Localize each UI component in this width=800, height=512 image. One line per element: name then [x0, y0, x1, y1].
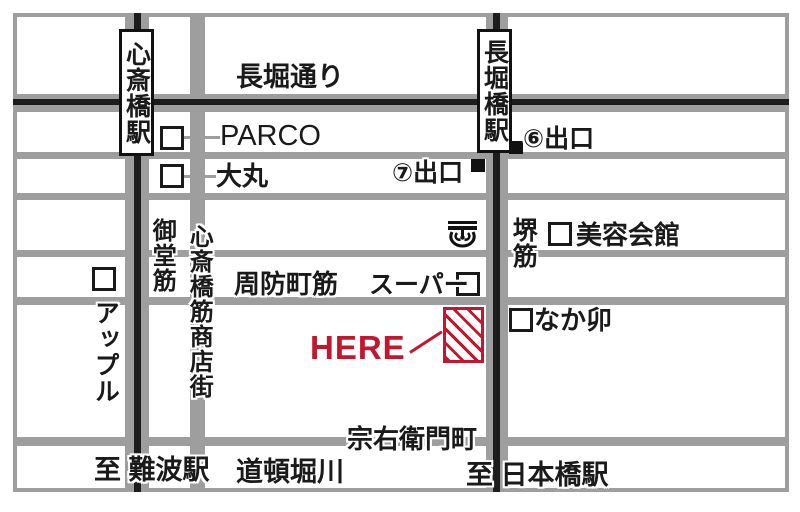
station-sign-nagahoribashi-label: 長堀橋駅 [477, 39, 513, 143]
exit7-label: ⑦出口 [392, 160, 463, 186]
station-sign-shinsaibashi: 心斎橋駅 [119, 29, 154, 156]
parco-connector [184, 136, 220, 139]
daimaru-marker [160, 164, 184, 188]
sakai-suji-label: 堺筋 [510, 217, 536, 269]
apple-marker [92, 267, 116, 291]
daimaru-label: 大丸 [216, 163, 268, 190]
here-box [443, 307, 484, 363]
shotengai-label: 心斎橋筋商店街 [186, 224, 211, 399]
station-sign-shinsaibashi-label: 心斎橋駅 [119, 41, 155, 145]
parco-label: PARCO [220, 121, 321, 151]
biyo-kaikan-label: 美容会館 [576, 222, 680, 249]
station-sign-nagahoribashi: 長堀橋駅 [477, 29, 512, 153]
to-namba-label: 至 難波駅 [94, 456, 210, 484]
here-pointer [409, 331, 443, 354]
dotonbori-label: 道頓堀川 [236, 458, 344, 486]
to-nipponbashi-label: 至 日本橋駅 [466, 461, 609, 489]
nakau-marker [509, 308, 533, 332]
daimaru-connector [184, 175, 216, 178]
nagahori-dori-label: 長堀通り [236, 63, 344, 91]
here-label: HERE [310, 331, 406, 366]
map-border-right [785, 13, 789, 492]
exit6-label: ⑥出口 [523, 126, 594, 152]
apple-label: アップル [92, 300, 118, 404]
soemoncho-label: 宗右衛門町 [347, 426, 477, 453]
parco-marker [160, 126, 184, 150]
supermarket-label: スーパー [369, 272, 469, 298]
nakau-label: なか卯 [534, 307, 612, 334]
access-map: 心斎橋駅 長堀橋駅 HERE 長堀通り PARCO 大丸 ⑥出口 ⑦出口 堺筋 … [0, 0, 800, 512]
exit7-marker [471, 159, 485, 172]
osaka-metro-icon [445, 220, 480, 248]
suomachi-suji-label: 周防町筋 [234, 271, 338, 298]
biyo-kaikan-marker [548, 222, 572, 246]
midosuji-label: 御堂筋 [149, 218, 174, 293]
